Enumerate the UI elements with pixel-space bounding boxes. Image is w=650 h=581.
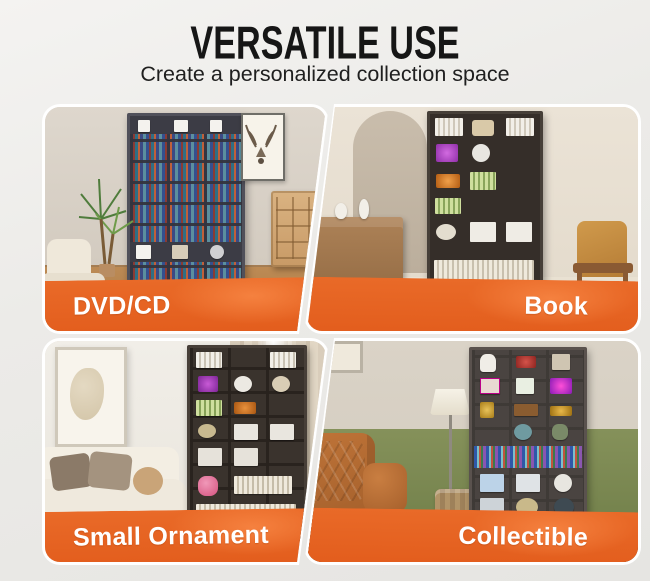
bust-sculpture [480, 354, 496, 372]
panel-dvd-cd: DVD/CD [45, 107, 326, 331]
versatile-use-infographic: VERSATILE USE Create a personalized coll… [0, 0, 650, 581]
decor-trophy [472, 120, 494, 136]
glow-ornament [436, 144, 458, 162]
panel-frame-dvd-cd: DVD/CD [42, 104, 329, 334]
cd-disc [472, 144, 490, 162]
label-banner-small-ornament: Small Ornament [45, 508, 326, 562]
panel-small-ornament: Small Ornament [45, 341, 326, 562]
panel-label: Collectible [458, 521, 588, 552]
glow-ornament [436, 174, 460, 188]
media-sleeve [470, 222, 496, 242]
label-banner-book: Book [307, 277, 638, 331]
panel-label: Small Ornament [73, 520, 269, 552]
label-banner-dvd-cd: DVD/CD [45, 277, 326, 331]
decor-figurine [359, 199, 369, 219]
panel-frame-book: Book [304, 104, 641, 334]
decor-figurine [335, 203, 347, 219]
wall-art [55, 347, 127, 447]
decor-plate [436, 224, 456, 240]
panel-label: DVD/CD [73, 291, 171, 321]
panel-label: Book [524, 291, 588, 321]
panel-frame-small-ornament: Small Ornament [42, 338, 329, 565]
media-sleeve [506, 222, 532, 242]
label-banner-collectible: Collectible [307, 508, 638, 562]
bottle-row [474, 446, 582, 468]
book-stack [435, 118, 463, 136]
floor-lamp [425, 389, 475, 499]
panel-frame-collectible: Collectible [304, 338, 641, 565]
panel-book: Book [307, 107, 638, 331]
shelf-album-row [130, 242, 242, 262]
green-books [470, 172, 496, 190]
deer-icon [243, 117, 279, 175]
page-subtitle: Create a personalized collection space [0, 62, 650, 87]
deer-art-print [241, 113, 285, 181]
shelf-top-row [130, 116, 242, 134]
book-stack [506, 118, 534, 136]
green-books [435, 198, 461, 214]
panel-collectible: Collectible [307, 341, 638, 562]
